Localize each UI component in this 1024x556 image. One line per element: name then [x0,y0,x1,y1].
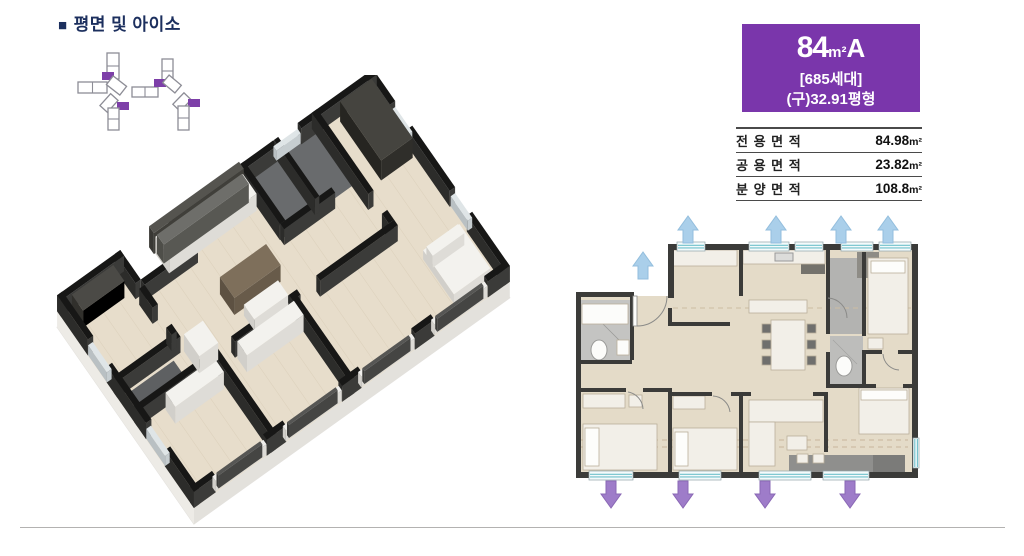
up-arrow-icon [831,216,851,243]
row-label: 전 용 면 적 [736,131,802,150]
isometric-floor-plan [25,75,525,533]
unit-type-badge: 84m²A [685세대] (구)32.91평형 [742,24,920,112]
table-row: 공 용 면 적 23.82m² [736,153,922,177]
up-arrow-icon [678,216,698,243]
area-table: 전 용 면 적 84.98m² 공 용 면 적 23.82m² 분 양 면 적 … [736,127,922,201]
floor-plan-2d [573,212,925,514]
down-arrow-icon [601,481,621,508]
unit-households: [685세대] [742,70,920,90]
bottom-divider [20,527,1005,528]
unit-legacy-size: (구)32.91평형 [742,90,920,110]
page-title: ■평면 및 아이소 [58,10,181,35]
down-arrow-icon [755,481,775,508]
up-arrow-icon [633,252,653,279]
unit-size-type: A [846,33,865,63]
row-value: 84.98m² [875,133,922,148]
unit-size-unit: m² [828,44,846,61]
table-row: 분 양 면 적 108.8m² [736,177,922,201]
unit-size-line: 84m²A [742,31,920,70]
row-value: 108.8m² [875,181,922,196]
row-label: 공 용 면 적 [736,155,802,174]
title-text: 평면 및 아이소 [74,15,181,34]
table-row: 전 용 면 적 84.98m² [736,129,922,153]
up-arrow-icon [878,216,898,243]
up-arrow-icon [766,216,786,243]
down-arrow-icon [840,481,860,508]
unit-size-number: 84 [797,31,828,64]
row-label: 분 양 면 적 [736,179,802,198]
title-bullet-icon: ■ [58,17,68,34]
down-arrow-icon [673,481,693,508]
row-value: 23.82m² [875,157,922,172]
